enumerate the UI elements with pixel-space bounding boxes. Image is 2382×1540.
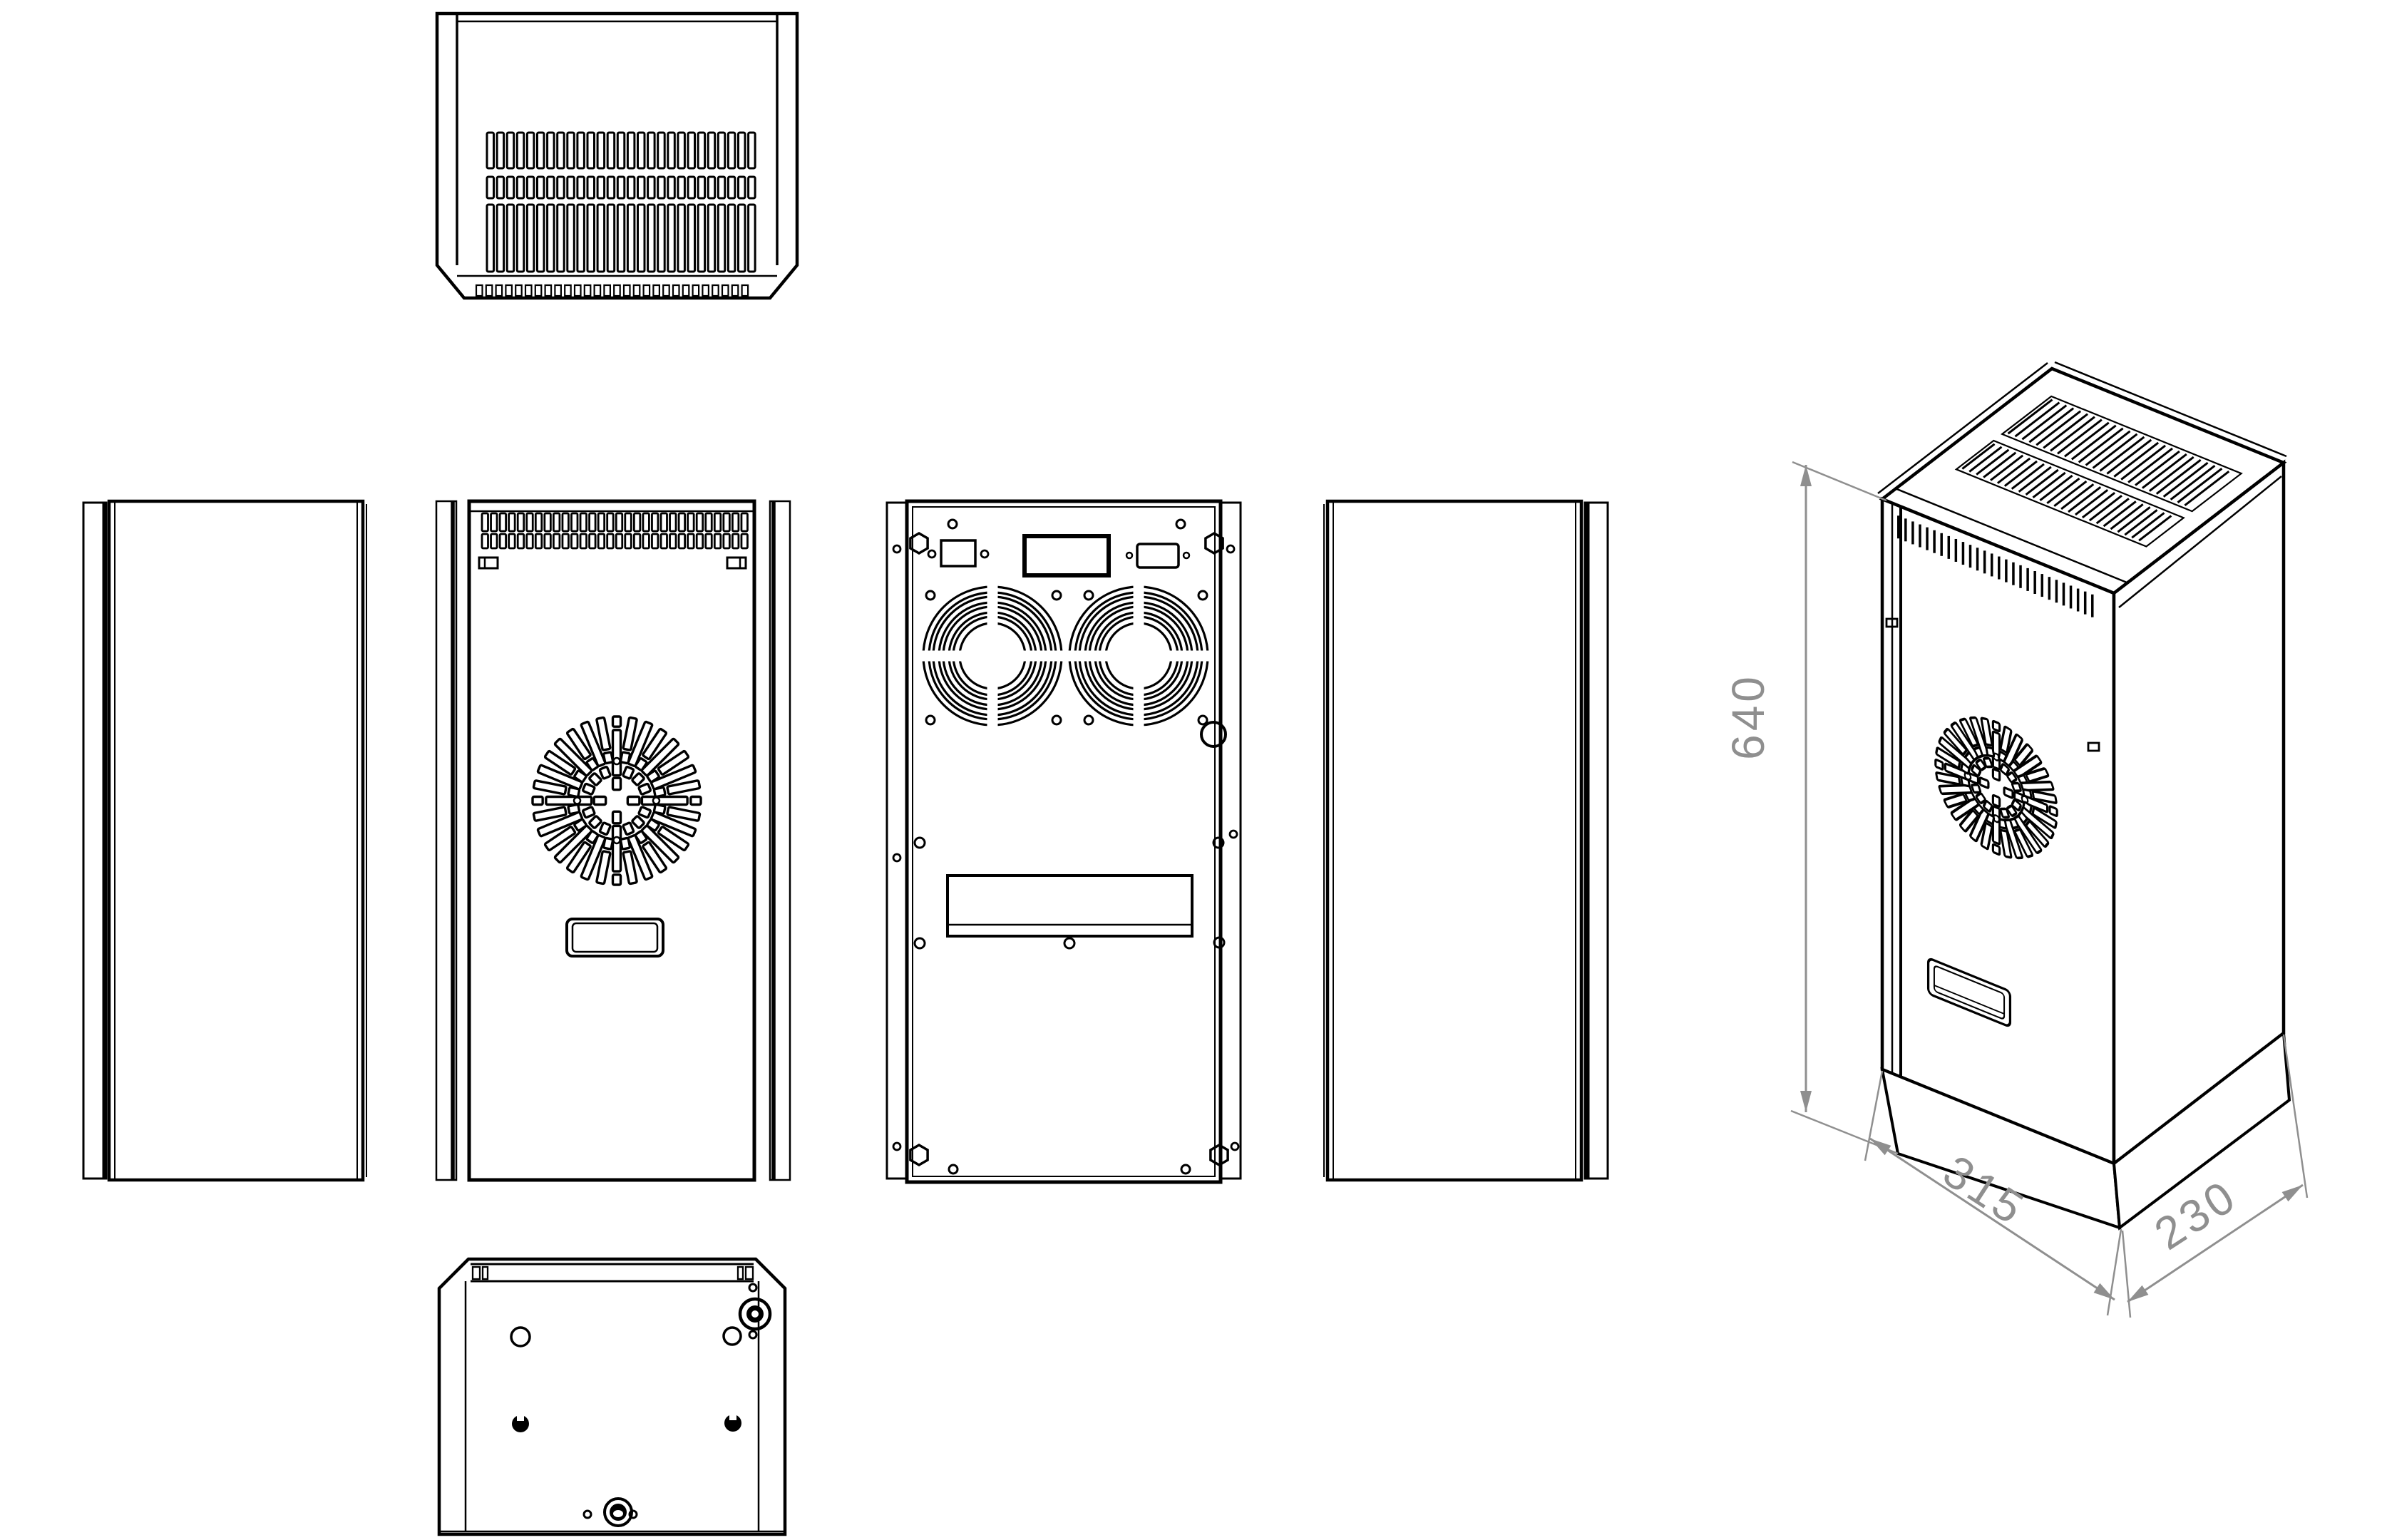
grille-end-slat (746, 1267, 753, 1279)
screw-hole (1198, 716, 1207, 724)
vent-slot (487, 177, 494, 198)
grille-end-slat (483, 1267, 488, 1279)
vent-slot (538, 133, 545, 168)
fan-slot (568, 804, 580, 814)
vent-slot (507, 177, 514, 198)
view-left-side (83, 501, 366, 1180)
dim-arrow (1867, 1134, 1891, 1155)
front-vent-slat (679, 513, 685, 531)
vent-slot (728, 205, 735, 272)
front-grille-slat (653, 285, 659, 296)
screw-hole (981, 550, 988, 558)
screw-hole (926, 716, 935, 724)
front-grille-slat (624, 285, 630, 296)
vent-slot (527, 133, 534, 168)
nameplate (567, 919, 663, 956)
fan-slot (2001, 808, 2009, 817)
fan-slot (1983, 759, 1992, 767)
vent-slot (688, 205, 695, 272)
vent-slot (497, 205, 504, 272)
fan-slot (600, 823, 611, 835)
vent-slot (668, 133, 675, 168)
fan-slot (2012, 783, 2021, 791)
fan-slot (2050, 806, 2057, 816)
front-vent-slat (491, 534, 498, 548)
vent-slot (507, 133, 514, 168)
fan-slot (622, 766, 634, 779)
vent-slot (678, 177, 685, 198)
front-grille-slat (604, 285, 610, 296)
fan-slot (613, 826, 621, 871)
vent-slot (648, 205, 655, 272)
fan-slot (613, 730, 621, 776)
vent-slot (708, 177, 715, 198)
fan-slot (589, 816, 602, 828)
iso-lid-rim (2055, 362, 2286, 456)
vent-slot (698, 205, 705, 272)
gland-center (751, 1310, 759, 1318)
screw-hole (749, 1331, 756, 1338)
vent-slot (688, 133, 695, 168)
stud-notch (729, 1415, 736, 1420)
vent-slot (548, 177, 555, 198)
view-right-side (1324, 501, 1608, 1180)
vent-slot (617, 177, 625, 198)
front-vent-slat (563, 513, 569, 531)
front-vent-slat (527, 513, 533, 531)
screw-hole (926, 591, 935, 600)
vent-slot (627, 177, 635, 198)
fan-slot (589, 773, 602, 786)
vent-slot (638, 133, 645, 168)
front-vent-slat (625, 534, 632, 548)
front-vent-slat (590, 534, 596, 548)
front-vent-slat (535, 513, 542, 531)
vent-slot (607, 133, 615, 168)
fan-spoke (533, 797, 606, 805)
side-panel (109, 501, 363, 1180)
fan-slot (1993, 721, 1999, 731)
front-vent-slat (553, 513, 560, 531)
front-grille-slat (722, 285, 729, 296)
dim-extension (2122, 1231, 2130, 1318)
front-vent-slat (688, 534, 694, 548)
view-front (436, 501, 790, 1180)
vent-slot (527, 205, 534, 272)
front-grille-slat (496, 285, 503, 296)
screw-hole (1126, 553, 1132, 558)
fan-slot (1993, 769, 1999, 781)
front-vent-slat (598, 513, 605, 531)
vent-slot (568, 177, 575, 198)
front-vent-slat (607, 534, 614, 548)
mounting-hole (724, 1328, 741, 1345)
vent-slot (658, 205, 665, 272)
vent-slot (658, 133, 665, 168)
front-vent-slat (634, 513, 640, 531)
front-vent-slat (670, 534, 677, 548)
screw-hole (1084, 591, 1093, 600)
front-vent-slat (607, 513, 614, 531)
front-grille-slat (555, 285, 561, 296)
vent-slot (749, 205, 756, 272)
front-grille-slat (732, 285, 739, 296)
screw-hole (928, 550, 935, 558)
fan-slot (691, 797, 701, 805)
fan-slot (600, 766, 611, 779)
grille-end-slat (473, 1267, 480, 1279)
front-vent-slat (482, 534, 488, 548)
vent-slot (749, 133, 756, 168)
fan-guard-gap (1067, 651, 1211, 662)
flange-hole (893, 1143, 900, 1150)
dim-arrow (1800, 1091, 1812, 1112)
fan-slot (594, 797, 606, 805)
front-vent-slat (732, 513, 739, 531)
fan-spoke (1939, 785, 1981, 794)
vent-slot (617, 133, 625, 168)
front-grille-slat (693, 285, 699, 296)
front-grille-slat (545, 285, 552, 296)
fan-slot-hole (614, 758, 620, 764)
fan-slot (632, 773, 645, 786)
front-vent-slat (661, 513, 667, 531)
vent-slot (517, 177, 524, 198)
front-vent-slat (553, 534, 560, 548)
fan-slot (1993, 795, 1999, 807)
vent-slot (668, 177, 675, 198)
front-vent-slat (500, 513, 506, 531)
front-grille-slat (634, 285, 640, 296)
front-grille-slat (712, 285, 719, 296)
dim-extension (2284, 1035, 2307, 1198)
side-panel (1328, 501, 1581, 1180)
fan-slot-hole (614, 837, 620, 843)
front-vent-slat (572, 513, 578, 531)
fan-slot (1936, 759, 1943, 769)
front-vent-slat (509, 534, 515, 548)
fan-spoke (1993, 795, 1999, 855)
flange-hole (893, 545, 900, 553)
fan-slot (533, 797, 543, 805)
fan-spoke (627, 797, 701, 805)
front-grille-slat (614, 285, 620, 296)
fan-slot (613, 811, 621, 823)
front-grille-slat (486, 285, 493, 296)
vent-slot (607, 177, 615, 198)
vent-slot (627, 133, 635, 168)
front-vent-slat (732, 534, 739, 548)
vent-slot (577, 177, 585, 198)
stud-notch (517, 1415, 524, 1421)
front-grille-slat (476, 285, 483, 296)
dim-arrow (2094, 1283, 2118, 1305)
vent-slot (668, 205, 675, 272)
vent-slot (558, 205, 565, 272)
screw-hole (749, 1284, 756, 1291)
vent-slot (749, 177, 756, 198)
vent-slot (527, 177, 534, 198)
front-vent-slat (563, 534, 569, 548)
screw-hole (1181, 1165, 1190, 1174)
front-vent-slat (598, 534, 605, 548)
fan-slot-hole (653, 798, 659, 804)
front-vent-slat (518, 534, 524, 548)
vent-slot (568, 133, 575, 168)
vent-slot (627, 205, 635, 272)
vent-slot (487, 133, 494, 168)
fan-spoke (613, 811, 621, 885)
flange-hole (1230, 831, 1237, 838)
front-grille-slat (515, 285, 522, 296)
screw-hole (1184, 553, 1189, 558)
front-vent-slat (652, 534, 658, 548)
vent-slot (718, 177, 725, 198)
front-vent-slat (643, 513, 650, 531)
vent-slot (698, 177, 705, 198)
fan-slot (1993, 844, 1999, 855)
fan-slot (582, 806, 595, 818)
fan-spoke (613, 717, 621, 790)
front-vent-slat (518, 513, 524, 531)
vent-slot (497, 133, 504, 168)
front-vent-slat (527, 534, 533, 548)
fan-slot (613, 875, 621, 885)
screw-hole (584, 1511, 591, 1518)
vent-slot (497, 177, 504, 198)
front-vent-slat (500, 534, 506, 548)
vent-slot (597, 205, 605, 272)
vent-slot (739, 133, 746, 168)
vent-slot (548, 133, 555, 168)
vent-slot (517, 205, 524, 272)
fan-slot (642, 797, 687, 805)
screw-hole (915, 938, 925, 948)
screw-hole (1176, 520, 1185, 528)
front-grille-slat (673, 285, 679, 296)
front-grille-slat (702, 285, 709, 296)
screw-hole (915, 838, 925, 848)
screw-hole (1052, 716, 1061, 724)
front-vent-slat (714, 513, 721, 531)
front-vent-slat (625, 513, 632, 531)
vent-slot (678, 133, 685, 168)
front-grille-slat (644, 285, 650, 296)
vent-slot (577, 133, 585, 168)
technical-drawing: 640 315 230 (0, 0, 2382, 1540)
front-vent-slat (697, 534, 703, 548)
view-isometric (1878, 362, 2289, 1228)
dim-height-label: 640 (1723, 673, 1774, 760)
front-grille-slat (742, 285, 749, 296)
vent-slot (638, 177, 645, 198)
fan-slot (620, 838, 630, 849)
dim-arrow (2282, 1180, 2306, 1201)
latch-clip (727, 558, 746, 568)
grille-end-slat (738, 1267, 743, 1279)
dsub-connector (1137, 544, 1179, 568)
front-vent-slat (491, 513, 498, 531)
front-vent-slat (706, 534, 712, 548)
front-vent-slat (616, 534, 622, 548)
fan-slot (1993, 806, 1999, 844)
vent-slot (558, 177, 565, 198)
terminal-cutout (1025, 536, 1109, 575)
front-vent-slat (697, 513, 703, 531)
front-grille-slat (505, 285, 512, 296)
screw-hole (949, 1165, 958, 1174)
fan-slot (639, 806, 651, 818)
front-vent-slat (580, 534, 587, 548)
vent-slot (688, 177, 695, 198)
fan-slot-hole (574, 798, 580, 804)
front-grille-slat (585, 285, 591, 296)
view-back (887, 501, 1241, 1182)
front-grille-slat (525, 285, 532, 296)
mounting-hole (511, 1328, 530, 1346)
vent-slot (617, 205, 625, 272)
front-vent-slat (643, 534, 650, 548)
fan-slot (1986, 747, 1994, 756)
front-vent-slat (509, 513, 515, 531)
front-vent-slat (661, 534, 667, 548)
vent-slot (587, 205, 595, 272)
fan-slot (546, 797, 592, 805)
bottom-outline (439, 1259, 785, 1534)
fan-slot (639, 784, 651, 795)
vent-slot (728, 133, 735, 168)
vent-slot (658, 177, 665, 198)
fan-slot (613, 778, 621, 790)
flange-hole (1231, 1143, 1238, 1150)
front-vent-slat (652, 513, 658, 531)
front-vent-slat (679, 534, 685, 548)
front-grille-slat (683, 285, 689, 296)
vent-slot (708, 133, 715, 168)
vent-slot (648, 133, 655, 168)
vent-slot (739, 205, 746, 272)
vent-slot (577, 205, 585, 272)
vent-slot (587, 177, 595, 198)
view-bottom (439, 1259, 785, 1534)
screw-hole (948, 520, 957, 528)
screw-hole (1064, 938, 1074, 948)
dim-extension (2108, 1229, 2121, 1315)
front-vent-slat (724, 534, 730, 548)
nameplate-inner (573, 923, 657, 952)
front-vent-slat (535, 534, 542, 548)
flange-hole (1227, 545, 1234, 553)
vent-slot (558, 133, 565, 168)
fan-slot (582, 784, 595, 795)
front-vent-slat (741, 513, 748, 531)
fan-slot (622, 823, 634, 835)
front-grille-slat (595, 285, 601, 296)
screw-hole (1052, 591, 1061, 600)
front-vent-slat (616, 513, 622, 531)
vent-slot (597, 133, 605, 168)
front-vent-slat (714, 534, 721, 548)
vent-slot (587, 133, 595, 168)
front-grille-slat (565, 285, 571, 296)
front-vent-slat (590, 513, 596, 531)
front-vent-slat (706, 513, 712, 531)
vent-slot (739, 177, 746, 198)
latch-clip (479, 558, 498, 568)
fan-slot (1971, 785, 1981, 793)
vent-slot (678, 205, 685, 272)
vent-slot (487, 205, 494, 272)
drain-slot (613, 1510, 623, 1517)
front-vent-slat (634, 534, 640, 548)
vent-slot (538, 177, 545, 198)
vent-slot (568, 205, 575, 272)
screw-hole (1198, 591, 1207, 600)
front-vent-slat (545, 534, 551, 548)
vent-slot (548, 205, 555, 272)
front-grille-slat (575, 285, 581, 296)
screw-hole (630, 1511, 637, 1518)
vent-slot (718, 133, 725, 168)
vent-slot (718, 205, 725, 272)
vent-slot (698, 133, 705, 168)
fan-slot (632, 816, 645, 828)
front-vent-slat (724, 513, 730, 531)
front-vent-slat (670, 513, 677, 531)
vent-slot (708, 205, 715, 272)
screw-hole (1084, 716, 1093, 724)
fan-guard-gap (920, 651, 1064, 662)
front-grille-slat (663, 285, 669, 296)
front-grille-slat (535, 285, 542, 296)
fan-slot (654, 787, 665, 797)
flange-hole (893, 854, 900, 861)
front-vent-slat (572, 534, 578, 548)
vent-slot (607, 205, 615, 272)
vent-slot (507, 205, 514, 272)
back-left-flange (887, 503, 907, 1179)
fan-spoke (2012, 782, 2054, 791)
vent-slot (517, 133, 524, 168)
front-vent-slat (580, 513, 587, 531)
vent-slot (597, 177, 605, 198)
fan-slot (627, 797, 640, 805)
vent-slot (728, 177, 735, 198)
vent-slot (638, 205, 645, 272)
gland-plate (948, 876, 1192, 936)
vent-slot (648, 177, 655, 198)
view-top (437, 14, 797, 298)
vent-slot (538, 205, 545, 272)
front-vent-slat (688, 513, 694, 531)
front-vent-slat (741, 534, 748, 548)
connector-socket (941, 540, 975, 566)
fan-slot (613, 717, 621, 727)
fan-slot (603, 752, 613, 764)
front-vent-slat (482, 513, 488, 531)
front-vent-slat (545, 513, 551, 531)
